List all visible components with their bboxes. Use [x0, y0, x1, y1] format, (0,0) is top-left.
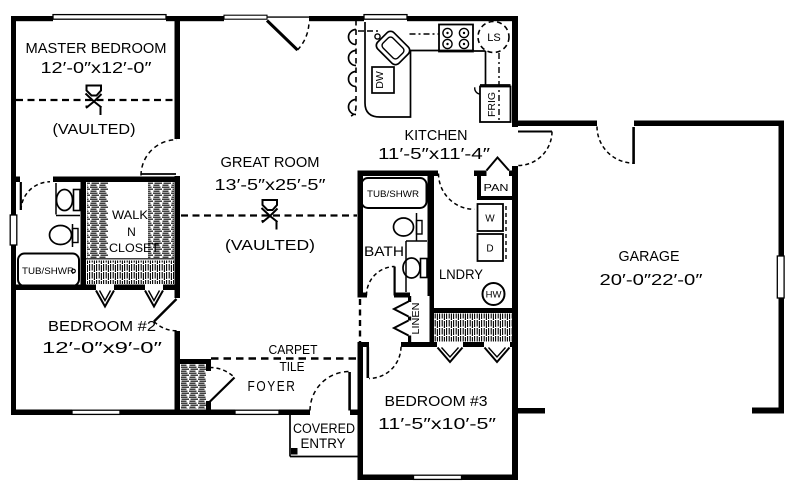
svg-text:ENTRY: ENTRY: [301, 436, 346, 451]
svg-text:FRIG: FRIG: [486, 92, 498, 117]
svg-text:N: N: [127, 225, 136, 239]
svg-text:WALK: WALK: [112, 208, 148, 222]
svg-text:TUB/SHWR: TUB/SHWR: [367, 189, 419, 200]
svg-text:LS: LS: [487, 32, 500, 44]
svg-text:12′-0″x12′-0″: 12′-0″x12′-0″: [41, 60, 153, 77]
svg-text:DW: DW: [374, 71, 386, 89]
svg-text:13′-5″x25′-5″: 13′-5″x25′-5″: [215, 177, 327, 194]
svg-text:GARAGE: GARAGE: [619, 249, 680, 265]
svg-text:COVERED: COVERED: [293, 421, 355, 436]
svg-text:KITCHEN: KITCHEN: [405, 128, 468, 144]
svg-text:HW: HW: [486, 290, 502, 301]
svg-text:BEDROOM #3: BEDROOM #3: [385, 394, 488, 410]
svg-text:BEDROOM #2: BEDROOM #2: [48, 319, 156, 335]
svg-text:D: D: [486, 244, 493, 255]
svg-text:LINEN: LINEN: [411, 303, 422, 335]
svg-text:12′-0″x9′-0″: 12′-0″x9′-0″: [42, 340, 163, 357]
svg-text:CARPET: CARPET: [269, 343, 318, 357]
svg-text:BATH: BATH: [364, 244, 404, 259]
svg-text:FOYER: FOYER: [248, 378, 297, 395]
svg-text:20′-0″22′-0″: 20′-0″22′-0″: [600, 272, 704, 289]
svg-text:11′-5″x10′-5″: 11′-5″x10′-5″: [378, 416, 497, 433]
svg-text:PAN: PAN: [484, 182, 509, 194]
svg-text:GREAT ROOM: GREAT ROOM: [221, 155, 320, 171]
svg-text:11′-5″x11′-4″: 11′-5″x11′-4″: [378, 146, 491, 163]
svg-text:MASTER BEDROOM: MASTER BEDROOM: [26, 41, 167, 57]
svg-text:W: W: [485, 214, 495, 225]
svg-text:(VAULTED): (VAULTED): [225, 238, 315, 254]
svg-text:LNDRY: LNDRY: [439, 267, 483, 282]
svg-text:TUB/SHWR: TUB/SHWR: [22, 266, 74, 277]
svg-text:TILE: TILE: [280, 360, 305, 374]
svg-text:CLOSET: CLOSET: [109, 241, 160, 255]
svg-text:(VAULTED): (VAULTED): [53, 122, 136, 138]
